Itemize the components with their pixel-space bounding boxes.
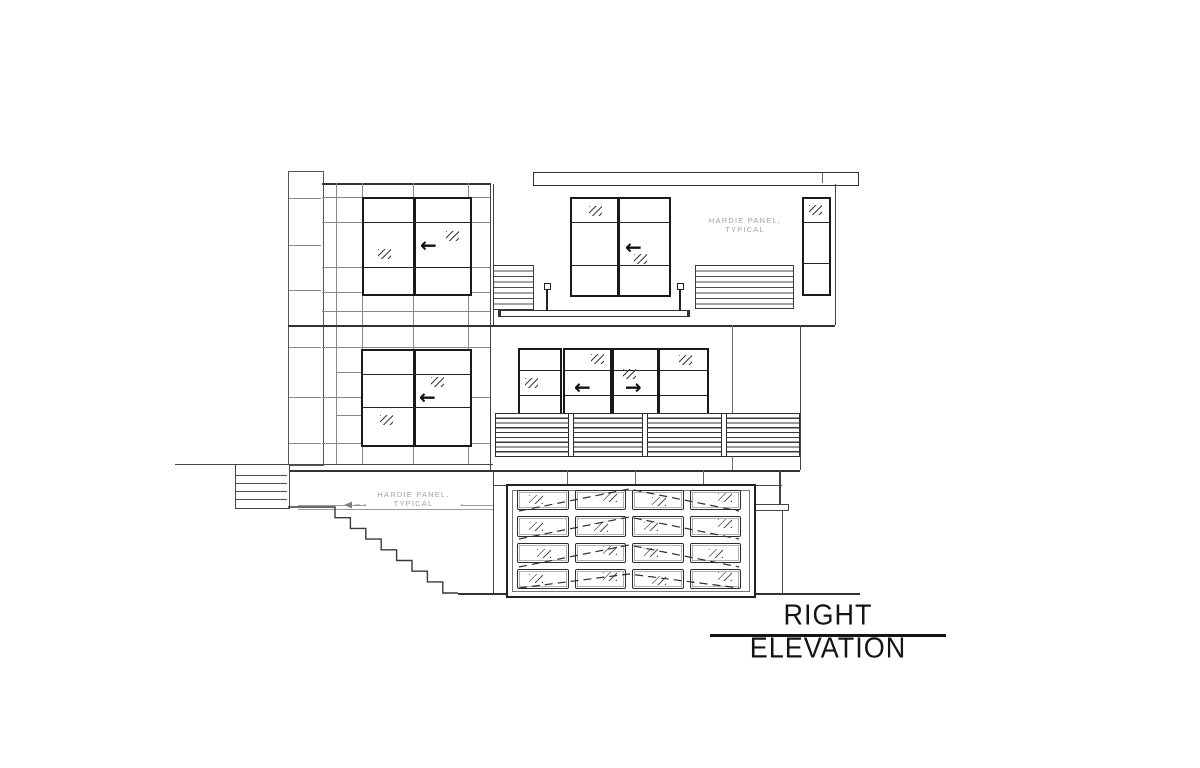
slide-arrow-right: → bbox=[625, 377, 642, 397]
retaining-steps bbox=[235, 464, 290, 509]
panel-joint-line bbox=[289, 347, 321, 348]
slide-arrow-left: ← bbox=[625, 237, 642, 257]
railing-post bbox=[679, 288, 681, 311]
lower-right-wall-edge bbox=[782, 509, 783, 593]
right-wall-post bbox=[779, 470, 781, 504]
balcony-deck-band bbox=[498, 310, 690, 317]
step-line bbox=[236, 475, 287, 476]
slide-arrow-left: ← bbox=[419, 387, 436, 407]
garage-door-panel bbox=[575, 490, 627, 510]
fascia-joint bbox=[822, 173, 823, 183]
mid-right-wall-edge bbox=[800, 325, 801, 470]
garage-door-glass-grid bbox=[517, 490, 741, 589]
roof-fascia bbox=[533, 172, 859, 186]
garage-door-panel bbox=[632, 543, 684, 563]
window-muntin bbox=[363, 407, 470, 408]
louver-vent-left bbox=[493, 265, 534, 310]
railing-divider bbox=[642, 414, 648, 456]
glazing-mark bbox=[446, 231, 459, 241]
railing-divider bbox=[721, 414, 727, 456]
panel-joint-line bbox=[289, 397, 321, 398]
window-second-left: ← bbox=[361, 349, 472, 447]
tower-right-corner-edge bbox=[490, 183, 491, 470]
window-upper-middle: ← bbox=[570, 197, 671, 297]
window-muntin bbox=[572, 222, 669, 223]
glazing-mark bbox=[378, 249, 391, 259]
window-upper-left: ← bbox=[362, 197, 472, 296]
garage-door-panel bbox=[575, 569, 627, 589]
site-stairs bbox=[288, 507, 458, 593]
hardie-panel-label-upper: HARDIE PANEL, TYPICAL bbox=[700, 216, 790, 234]
header-joint bbox=[567, 470, 568, 485]
railing-post-cap bbox=[677, 283, 684, 290]
panel-joint-line bbox=[336, 415, 362, 416]
garage-door-panel bbox=[632, 569, 684, 589]
header-joint bbox=[703, 470, 704, 485]
garage-door-panel bbox=[632, 490, 684, 510]
grade-line-left bbox=[175, 464, 493, 465]
garage-door-panel bbox=[517, 516, 569, 536]
glazing-mark bbox=[809, 205, 822, 215]
glazing-mark bbox=[525, 378, 538, 388]
window-mullion bbox=[413, 199, 416, 294]
panel-joint-line bbox=[289, 290, 321, 291]
drawing-title: RIGHT ELEVATION bbox=[712, 599, 944, 665]
step-line bbox=[236, 483, 287, 484]
window-muntin bbox=[520, 370, 560, 371]
window-band-unit-2: ← bbox=[563, 348, 612, 417]
garage-door-panel bbox=[690, 543, 742, 563]
garage-door-panel bbox=[517, 490, 569, 510]
window-upper-right-narrow bbox=[802, 197, 831, 296]
window-muntin bbox=[364, 222, 470, 223]
label-text: HARDIE PANEL, bbox=[700, 216, 790, 225]
slide-arrow-left: ← bbox=[574, 377, 591, 397]
label-text: TYPICAL bbox=[700, 225, 790, 234]
window-muntin bbox=[804, 222, 829, 223]
panel-joint-line bbox=[336, 183, 337, 464]
label-text: TYPICAL bbox=[366, 499, 461, 508]
garage-door-panel bbox=[517, 569, 569, 589]
panel-joint-line bbox=[289, 198, 321, 199]
window-band-unit-4 bbox=[658, 348, 709, 417]
step-line bbox=[236, 499, 287, 500]
window-muntin bbox=[364, 267, 470, 268]
wall-trim-line bbox=[298, 509, 493, 510]
garage-door-panel bbox=[690, 569, 742, 589]
elevation-drawing-sheet: ← ← ← ← bbox=[0, 0, 1200, 768]
railing-divider bbox=[568, 414, 574, 456]
garage-door-panel bbox=[517, 543, 569, 563]
panel-joint-line bbox=[289, 245, 321, 246]
left-pilaster-grid bbox=[288, 171, 324, 466]
panel-joint-line bbox=[322, 311, 490, 312]
garage-door-panel bbox=[690, 516, 742, 536]
panel-joint-line bbox=[322, 347, 490, 348]
window-muntin bbox=[660, 395, 707, 396]
garage-door-panel bbox=[690, 490, 742, 510]
title-underline bbox=[710, 634, 946, 637]
label-text: HARDIE PANEL, bbox=[366, 490, 461, 499]
balcony-louver-railing bbox=[495, 413, 800, 457]
window-band-unit-1 bbox=[518, 348, 562, 417]
garage-door-panel bbox=[575, 516, 627, 536]
glazing-mark bbox=[589, 206, 602, 216]
railing-post bbox=[546, 288, 548, 311]
glazing-mark bbox=[679, 355, 692, 365]
header-joint bbox=[635, 470, 636, 485]
window-muntin bbox=[363, 374, 470, 375]
louver-vent-right bbox=[695, 265, 794, 309]
window-mullion bbox=[617, 199, 620, 295]
panel-joint-line bbox=[336, 372, 362, 373]
window-band-unit-3: → bbox=[612, 348, 659, 417]
window-muntin bbox=[520, 395, 560, 396]
tower-roof-edge bbox=[322, 183, 490, 185]
lower-left-wall-edge bbox=[493, 470, 494, 593]
step-line bbox=[236, 491, 287, 492]
hardie-panel-label-lower: HARDIE PANEL, TYPICAL bbox=[366, 490, 461, 508]
garage-door-panel bbox=[632, 516, 684, 536]
window-muntin bbox=[572, 265, 669, 266]
glazing-mark bbox=[591, 354, 604, 364]
window-muntin bbox=[804, 263, 829, 264]
window-muntin bbox=[565, 370, 610, 371]
glazing-mark bbox=[380, 415, 393, 425]
panel-joint-line bbox=[289, 443, 321, 444]
railing-post-cap bbox=[544, 283, 551, 290]
upper-right-wall-edge bbox=[835, 184, 836, 325]
third-floor-line bbox=[288, 325, 835, 327]
slide-arrow-left: ← bbox=[420, 235, 437, 255]
garage-door-panel bbox=[575, 543, 627, 563]
window-muntin bbox=[660, 370, 707, 371]
second-floor-line bbox=[288, 470, 800, 472]
window-mullion bbox=[413, 351, 416, 445]
